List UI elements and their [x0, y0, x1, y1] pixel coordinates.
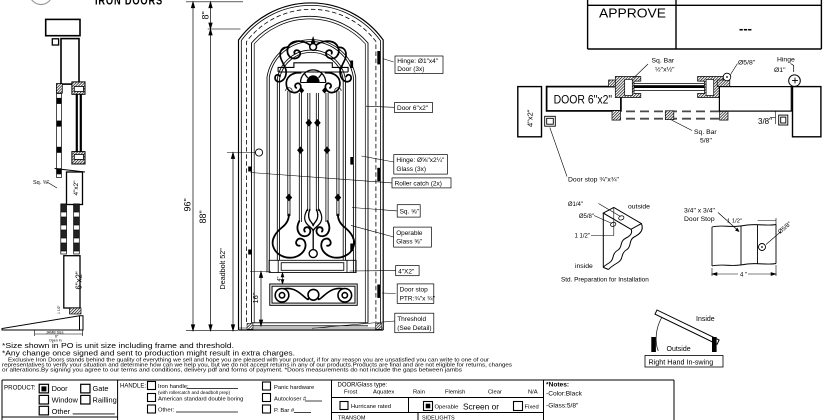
svg-text:8": 8": [201, 11, 211, 19]
svg-text:Window: Window: [52, 395, 79, 404]
svg-text:Rain: Rain: [413, 390, 425, 396]
svg-text:Right Hand In-swing: Right Hand In-swing: [649, 357, 714, 366]
svg-text:Panic hardware: Panic hardware: [274, 385, 314, 391]
svg-text:Door (3x): Door (3x): [397, 66, 424, 73]
svg-text:Clear: Clear: [488, 390, 502, 396]
svg-text:Ø5/8": Ø5/8": [579, 214, 594, 220]
svg-text:1 1/2": 1 1/2": [575, 234, 590, 240]
svg-text:Flemish: Flemish: [445, 390, 465, 396]
svg-text:Hinge: Hinge: [777, 57, 795, 64]
svg-text:Other:: Other:: [158, 408, 174, 414]
svg-text:Ø1": Ø1": [774, 67, 786, 74]
svg-text:Roller catch (2x): Roller catch (2x): [395, 181, 442, 188]
svg-text:(See Detail): (See Detail): [397, 325, 431, 332]
svg-text:TRANSOM: TRANSOM: [338, 416, 366, 420]
svg-text:Ø1/4": Ø1/4": [568, 202, 583, 208]
svg-text:Ø5/8": Ø5/8": [738, 60, 756, 67]
svg-text:Hinge: Ø1"x4": Hinge: Ø1"x4": [397, 58, 438, 65]
svg-text:Door Stop: Door Stop: [684, 216, 715, 223]
svg-text:Iron handle:: Iron handle:: [158, 384, 189, 390]
svg-text:3/8": 3/8": [758, 117, 772, 126]
svg-text:Std. Preparation for Installat: Std. Preparation for Installation: [561, 277, 649, 284]
svg-text:Gate: Gate: [93, 384, 109, 393]
svg-text:96": 96": [183, 198, 193, 211]
svg-text:5/8": 5/8": [700, 138, 712, 145]
svg-text:Operable: Operable: [435, 405, 459, 411]
svg-text:DOOR 6"x2": DOOR 6"x2": [554, 92, 613, 106]
svg-text:Sq. Bar: Sq. Bar: [694, 129, 717, 136]
svg-text:---: ---: [739, 21, 752, 36]
svg-text:American standard double borin: American standard double boring: [158, 397, 243, 403]
svg-text:Glass (3x): Glass (3x): [396, 166, 426, 173]
svg-text:6"x2": 6"x2": [75, 271, 84, 289]
svg-text:IRON DOORS: IRON DOORS: [95, 0, 163, 8]
svg-text:HANDLE:: HANDLE:: [120, 384, 146, 390]
svg-text:PTR:¾"x ¾": PTR:¾"x ¾": [400, 296, 436, 303]
svg-text:Deadbolt 52": Deadbolt 52": [218, 248, 227, 290]
svg-text:Autocloser #: Autocloser #: [274, 396, 307, 402]
svg-text:*Notes:: *Notes:: [546, 382, 569, 389]
svg-text:1 1/2": 1 1/2": [727, 219, 742, 225]
svg-text:or alterations.By signing you: or alterations.By signing you agree to o…: [2, 368, 462, 374]
svg-text:*Any change once signed and se: *Any change once signed and sent to prod…: [2, 349, 295, 358]
svg-text:4"X2": 4"X2": [398, 268, 415, 275]
svg-text:½"x½": ½"x½": [655, 66, 675, 74]
svg-text:3/4" x 3/4": 3/4" x 3/4": [684, 208, 715, 215]
svg-text:16": 16": [251, 292, 260, 303]
svg-text:Sq. ⅝": Sq. ⅝": [33, 180, 49, 186]
svg-text:4 ": 4 ": [740, 273, 747, 279]
svg-text:outside: outside: [628, 204, 650, 211]
svg-text:Other: Other: [52, 407, 71, 416]
svg-text:Sq. ⅝": Sq. ⅝": [400, 208, 420, 215]
svg-text:P. Bar #: P. Bar #: [274, 408, 295, 414]
svg-text:-Color:Black: -Color:Black: [546, 391, 583, 398]
svg-text:SIDELIGHTS: SIDELIGHTS: [422, 416, 455, 420]
svg-text:Operable: Operable: [396, 230, 423, 237]
svg-text:inside: inside: [575, 263, 593, 270]
svg-text:(with rollercatch and deadbolt: (with rollercatch and deadbolt prep): [158, 390, 230, 395]
svg-text:4"x2": 4"x2": [526, 109, 535, 127]
svg-text:PRODUCT:: PRODUCT:: [4, 385, 36, 392]
svg-text:Glass ⅝": Glass ⅝": [396, 239, 422, 246]
svg-text:DOOR/Glass type:: DOOR/Glass type:: [338, 383, 388, 389]
svg-text:Hurricane rated: Hurricane rated: [351, 404, 391, 410]
svg-text:Door stop ¾"x¾": Door stop ¾"x¾": [568, 177, 620, 184]
svg-text:APPROVE: APPROVE: [599, 7, 666, 21]
svg-text:4": 4": [277, 276, 283, 281]
svg-text:Threshold: Threshold: [397, 316, 426, 323]
svg-text:Railling: Railling: [93, 395, 117, 404]
svg-text:Door 6"x2": Door 6"x2": [397, 105, 429, 112]
svg-text:Aquatex: Aquatex: [373, 390, 394, 396]
svg-text:Frost: Frost: [344, 390, 358, 396]
svg-text:88": 88": [198, 210, 208, 223]
svg-text:4"x2": 4"x2": [73, 180, 80, 196]
svg-text:Hinge: Ø⅝"x2¼": Hinge: Ø⅝"x2¼": [396, 157, 445, 164]
svg-text:Fixed: Fixed: [525, 405, 539, 411]
svg-text:Screen or: Screen or: [463, 402, 499, 412]
svg-text:Door stop: Door stop: [400, 287, 429, 294]
svg-text:Door: Door: [52, 384, 69, 393]
svg-text:N/A: N/A: [528, 390, 538, 396]
svg-text:Inside: Inside: [696, 316, 715, 323]
svg-text:Sq. Bar: Sq. Bar: [652, 58, 675, 65]
svg-text:-Glass:5/8": -Glass:5/8": [546, 403, 579, 410]
svg-text:1 1/2": 1 1/2": [57, 304, 61, 314]
svg-text:Outside: Outside: [667, 346, 691, 353]
